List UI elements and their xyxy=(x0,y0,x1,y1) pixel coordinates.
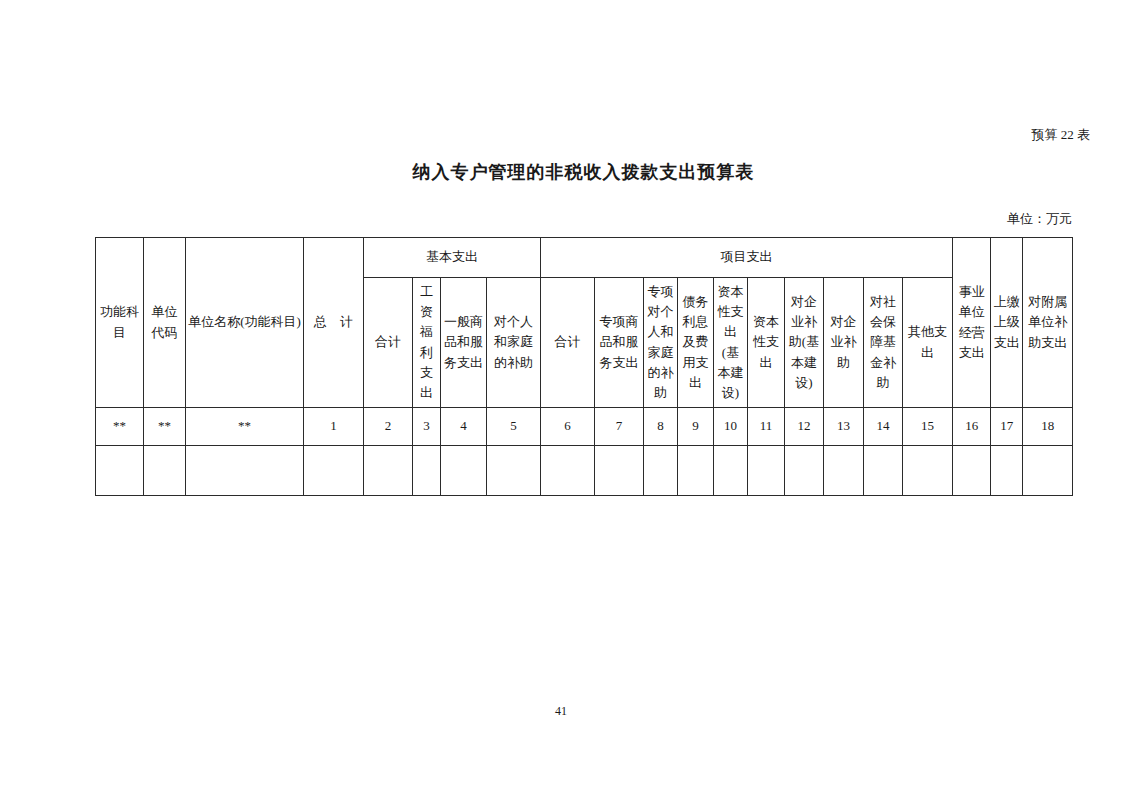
index-cell: 9 xyxy=(678,408,714,446)
header-row-groups: 功能科目 单位代码 单位名称(功能科目) 总 计 基本支出 项目支出 事业单位经… xyxy=(96,238,1073,278)
empty-cell xyxy=(714,446,748,496)
empty-cell xyxy=(678,446,714,496)
empty-cell xyxy=(441,446,487,496)
index-cell: 13 xyxy=(824,408,864,446)
header-basic-individual-family-subsidy: 对个人和家庭的补助 xyxy=(487,278,541,408)
header-project-capital: 资本性支出 xyxy=(748,278,785,408)
header-unit-code: 单位代码 xyxy=(144,238,186,408)
empty-cell xyxy=(953,446,991,496)
empty-cell xyxy=(824,446,864,496)
index-cell: ** xyxy=(186,408,304,446)
index-cell: 12 xyxy=(785,408,824,446)
empty-cell xyxy=(595,446,644,496)
empty-cell xyxy=(864,446,903,496)
column-index-row: ** ** ** 1 2 3 4 5 6 7 8 9 10 11 12 13 1… xyxy=(96,408,1073,446)
empty-cell xyxy=(487,446,541,496)
empty-cell xyxy=(144,446,186,496)
index-cell: 10 xyxy=(714,408,748,446)
index-cell: 7 xyxy=(595,408,644,446)
empty-cell xyxy=(186,446,304,496)
empty-cell xyxy=(364,446,413,496)
header-project-capital-basic-construction: 资本性支出(基本建设) xyxy=(714,278,748,408)
budget-table: 功能科目 单位代码 单位名称(功能科目) 总 计 基本支出 项目支出 事业单位经… xyxy=(95,237,1073,496)
header-group-basic-expenditure: 基本支出 xyxy=(364,238,541,278)
index-cell: 11 xyxy=(748,408,785,446)
header-basic-goods-services: 一般商品和服务支出 xyxy=(441,278,487,408)
index-cell: ** xyxy=(96,408,144,446)
index-cell: 17 xyxy=(991,408,1023,446)
header-project-enterprise-subsidy-basic-construction: 对企业补助(基本建设) xyxy=(785,278,824,408)
header-unit-name: 单位名称(功能科目) xyxy=(186,238,304,408)
empty-cell xyxy=(304,446,364,496)
empty-cell xyxy=(785,446,824,496)
header-affiliated-subsidy: 对附属单位补助支出 xyxy=(1023,238,1073,408)
index-cell: ** xyxy=(144,408,186,446)
empty-cell xyxy=(644,446,678,496)
empty-cell xyxy=(96,446,144,496)
index-cell: 5 xyxy=(487,408,541,446)
unit-note: 单位：万元 xyxy=(1007,210,1072,228)
empty-cell xyxy=(541,446,595,496)
empty-cell xyxy=(748,446,785,496)
index-cell: 14 xyxy=(864,408,903,446)
empty-cell xyxy=(1023,446,1073,496)
header-project-debt-interest-fees: 债务利息及费用支出 xyxy=(678,278,714,408)
index-cell: 1 xyxy=(304,408,364,446)
header-project-individual-family-subsidy: 专项对个人和家庭的补助 xyxy=(644,278,678,408)
header-project-social-security-fund-subsidy: 对社会保障基金补助 xyxy=(864,278,903,408)
index-cell: 8 xyxy=(644,408,678,446)
header-project-other-expenditure: 其他支出 xyxy=(903,278,953,408)
index-cell: 2 xyxy=(364,408,413,446)
empty-cell xyxy=(413,446,441,496)
header-project-goods-services: 专项商品和服务支出 xyxy=(595,278,644,408)
index-cell: 16 xyxy=(953,408,991,446)
header-grand-total: 总 计 xyxy=(304,238,364,408)
header-operating-expenditure: 事业单位经营支出 xyxy=(953,238,991,408)
empty-cell xyxy=(903,446,953,496)
page-title: 纳入专户管理的非税收入拨款支出预算表 xyxy=(95,160,1072,184)
index-cell: 6 xyxy=(541,408,595,446)
page-number: 41 xyxy=(0,704,1122,719)
empty-cell xyxy=(991,446,1023,496)
empty-data-row xyxy=(96,446,1073,496)
header-basic-subtotal: 合计 xyxy=(364,278,413,408)
table-number-label: 预算 22 表 xyxy=(1032,126,1091,144)
header-function-subject: 功能科目 xyxy=(96,238,144,408)
index-cell: 4 xyxy=(441,408,487,446)
header-group-project-expenditure: 项目支出 xyxy=(541,238,953,278)
header-project-subtotal: 合计 xyxy=(541,278,595,408)
header-project-enterprise-subsidy: 对企业补助 xyxy=(824,278,864,408)
header-upper-level-payment: 上缴上级支出 xyxy=(991,238,1023,408)
index-cell: 18 xyxy=(1023,408,1073,446)
header-basic-wages-welfare: 工资福利支出 xyxy=(413,278,441,408)
index-cell: 3 xyxy=(413,408,441,446)
index-cell: 15 xyxy=(903,408,953,446)
